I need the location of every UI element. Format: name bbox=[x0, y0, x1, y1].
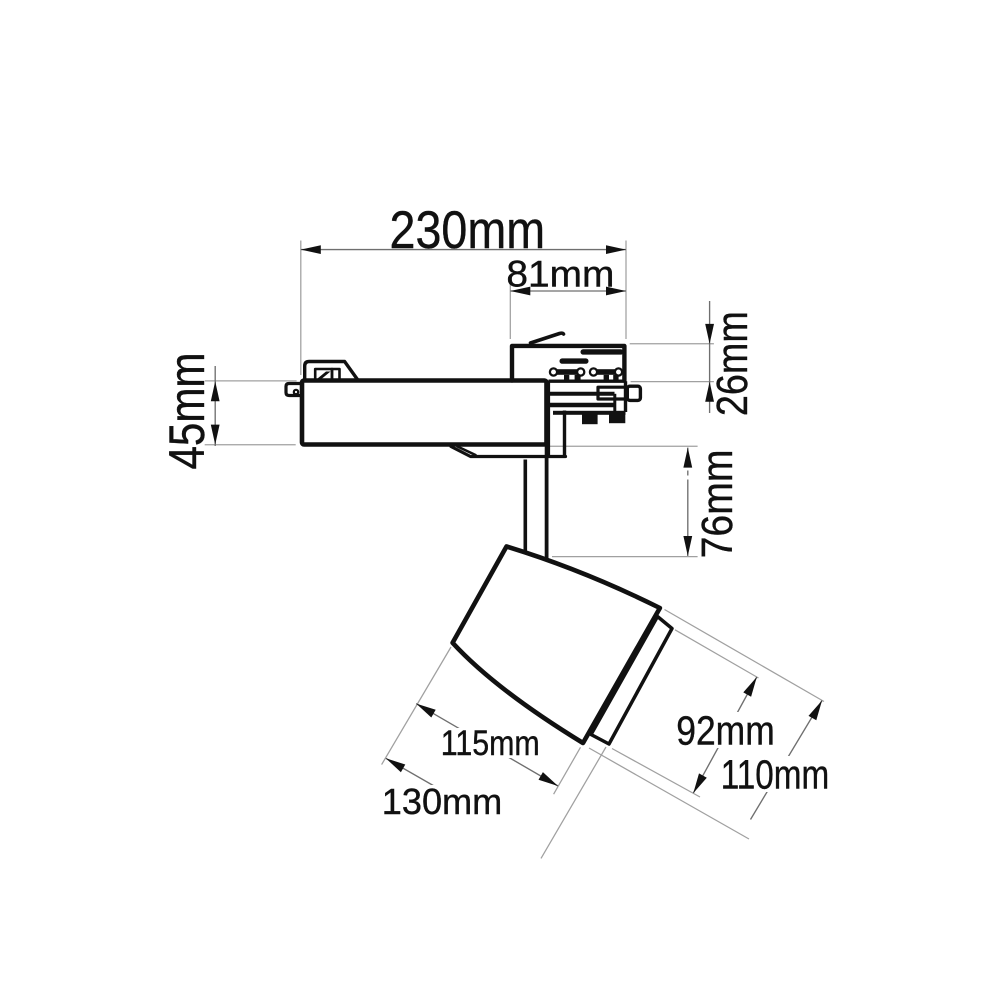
svg-text:26mm: 26mm bbox=[709, 311, 757, 416]
svg-text:115mm: 115mm bbox=[441, 724, 540, 763]
svg-text:45mm: 45mm bbox=[158, 353, 215, 470]
svg-text:130mm: 130mm bbox=[382, 781, 503, 822]
svg-text:92mm: 92mm bbox=[676, 708, 775, 754]
svg-text:76mm: 76mm bbox=[694, 449, 742, 558]
svg-text:81mm: 81mm bbox=[506, 254, 614, 295]
svg-text:110mm: 110mm bbox=[721, 751, 830, 797]
svg-text:230mm: 230mm bbox=[390, 201, 546, 260]
